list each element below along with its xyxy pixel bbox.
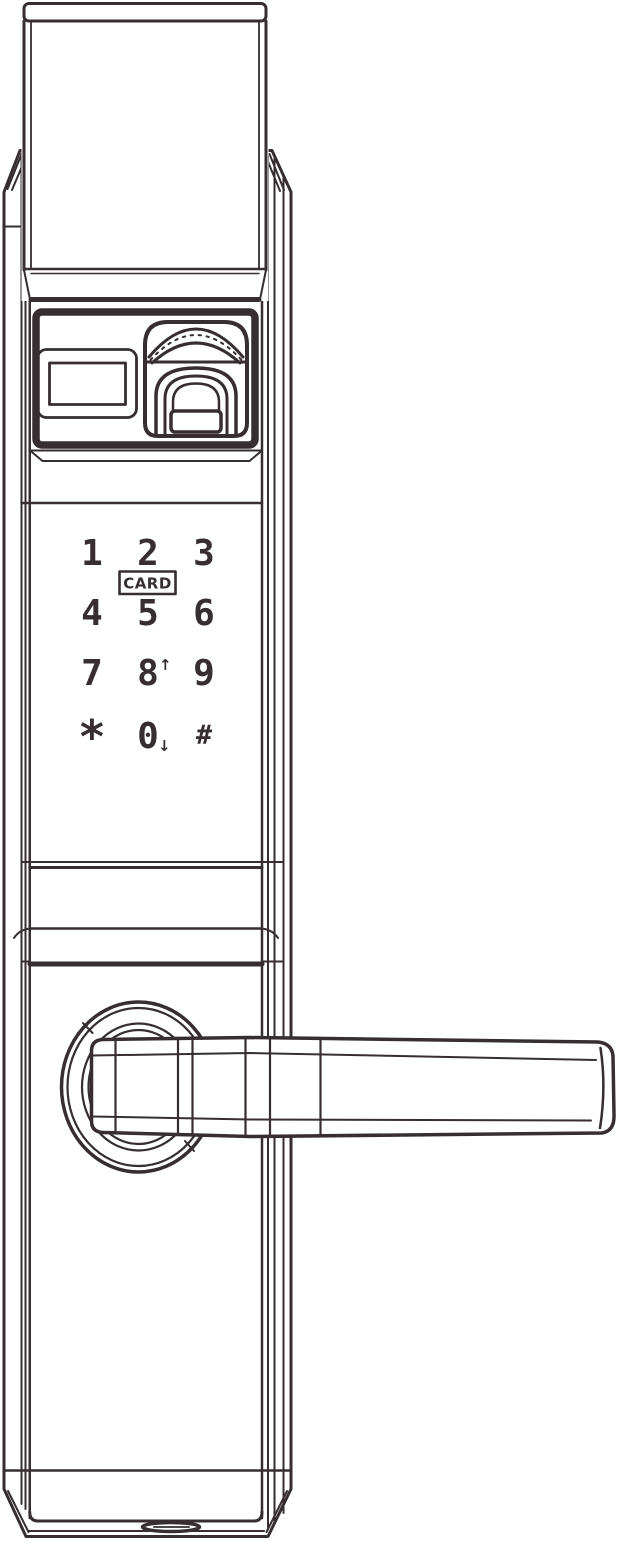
fingerprint-reader [145,322,247,436]
lever-handle-outline [92,1038,615,1137]
keypad-key-4: 4 [81,593,103,634]
keypad-key-5: 5 [137,593,159,634]
fingerprint-sensor-base [171,411,221,432]
deadbolt-cover-block [22,2,269,301]
smart-lock-technical-drawing: 1 2 3 CARD 4 5 6 7 8 ↑ 9 * 0 ↓ # [0,0,617,1541]
deadbolt-cover-underlay [22,2,269,301]
keypad-key-hash: # [196,720,213,751]
keypad-key-star: * [78,710,106,764]
keypad-key-3: 3 [193,533,215,574]
keypad-key-2: 2 [137,533,159,574]
down-arrow-icon: ↓ [158,737,171,755]
keypad-key-1: 1 [81,533,103,574]
keypad-key-7: 7 [81,653,103,694]
keypad-key-0: 0 [137,716,159,757]
deadbolt-cover-cap [24,4,266,22]
card-zone-label: CARD [123,575,172,593]
keypad-key-9: 9 [193,653,215,694]
keypad-key-6: 6 [193,593,215,634]
keypad-key-8: 8 [137,653,159,694]
up-arrow-icon: ↑ [159,656,172,674]
